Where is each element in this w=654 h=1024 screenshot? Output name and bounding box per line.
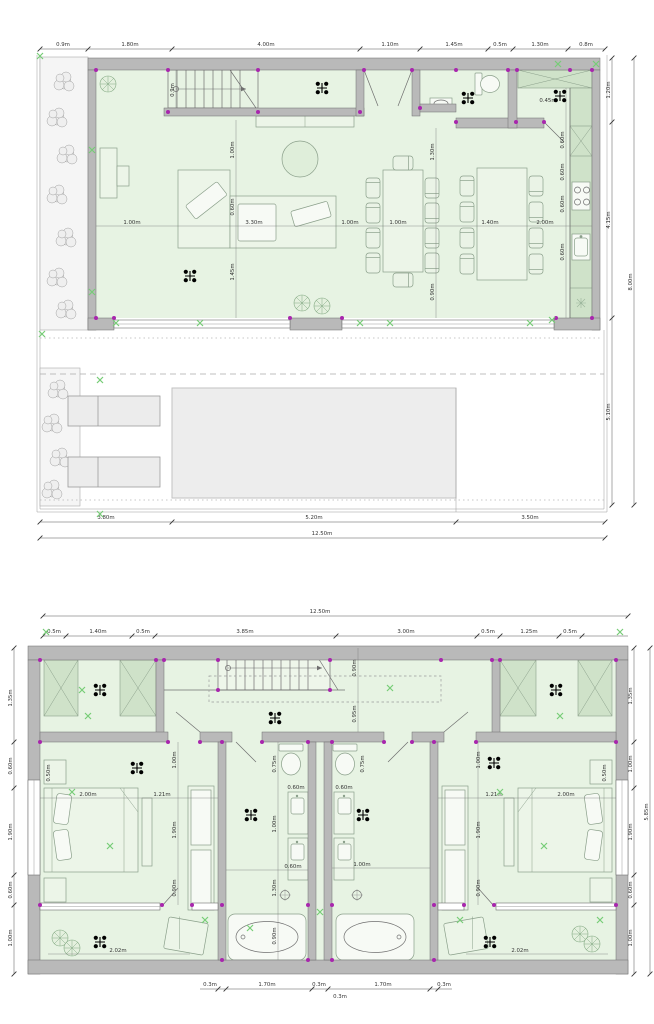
dim-label: 4.00m <box>257 42 274 48</box>
dim-label: 0.9m <box>170 83 176 97</box>
floor-plan-sheet: 0.9m 1.80m 4.00m 1.10m 1.45m 0.5m 1.30m … <box>0 0 654 1024</box>
ceiling-light-icon <box>245 809 258 822</box>
dim-label: 1.00m <box>341 220 358 226</box>
dim-label: 1.30m <box>430 143 436 160</box>
dim-label: 0.5m <box>563 629 577 635</box>
dim-label: 1.70m <box>374 982 391 988</box>
dim-label: 1.00m <box>123 220 140 226</box>
dim-label: 0.3m <box>437 982 451 988</box>
ceiling-light-icon <box>554 90 567 103</box>
drain-icon <box>570 288 592 318</box>
dim-label: 2.00m <box>557 792 574 798</box>
dim-label: 2.00m <box>79 792 96 798</box>
dim-label: 1.90m <box>628 823 634 840</box>
dim-label: 1.80m <box>121 42 138 48</box>
bathtub-icon <box>336 914 414 960</box>
dim-label: 1.90m <box>172 821 178 838</box>
dim-label: 1.30m <box>272 879 278 896</box>
dim-label: 1.00m <box>272 815 278 832</box>
dim-label: 0.50m <box>602 764 608 781</box>
dim-label: 1.10m <box>381 42 398 48</box>
bed <box>518 788 612 872</box>
dim-label: 3.80m <box>97 515 114 521</box>
dim-label: 1.21m <box>153 792 170 798</box>
pool <box>172 388 456 498</box>
dim-label: 1.45m <box>445 42 462 48</box>
dim-label: 8.00m <box>628 273 634 290</box>
dim-label: 1.00m <box>628 755 634 772</box>
plant-icon <box>294 295 310 311</box>
dim-label: 1.21m <box>485 792 502 798</box>
dim-label: 0.60m <box>628 881 634 898</box>
ceiling-light-icon <box>484 936 497 949</box>
dim-label: 1.45m <box>230 263 236 280</box>
sun-lounger <box>68 396 160 426</box>
dim-label: 0.5m <box>47 629 61 635</box>
dim-label: 4.15m <box>606 211 612 228</box>
dim-label: 0.5m <box>493 42 507 48</box>
ceiling-light-icon <box>550 684 563 697</box>
nightstand <box>44 878 66 902</box>
dim-label: 0.3m <box>333 994 347 1000</box>
dim-label: 1.00m <box>230 141 236 158</box>
dim-label: 0.90m <box>476 879 482 896</box>
upper-floor-plan: 12.50m 0.5m 1.40m 0.5m 3.85m 3.00m 0.5m … <box>8 609 652 1000</box>
ceiling-light-icon <box>357 809 370 822</box>
dim-label: 0.60m <box>287 785 304 791</box>
dim-label: 1.40m <box>89 629 106 635</box>
dim-label: 2.00m <box>536 220 553 226</box>
planting-bed-upper <box>40 57 88 330</box>
dim-label: 3.30m <box>245 220 262 226</box>
dim-label: 1.20m <box>606 81 612 98</box>
dim-label: 0.60m <box>335 785 352 791</box>
dim-label: 1.90m <box>476 821 482 838</box>
dim-label: 0.90m <box>352 659 358 676</box>
plant-icon <box>584 936 600 952</box>
nightstand <box>590 760 612 784</box>
dim-label: 0.95m <box>352 705 358 722</box>
nightstand <box>590 878 612 902</box>
plant-icon <box>314 298 330 314</box>
dim-label: 5.10m <box>606 403 612 420</box>
ceiling-light-icon <box>94 936 107 949</box>
dim-label: 0.60m <box>284 864 301 870</box>
dim-label: 2.02m <box>511 948 528 954</box>
dim-label: 1.40m <box>481 220 498 226</box>
wardrobe <box>188 786 214 910</box>
dim-label: 0.75m <box>360 755 366 772</box>
dim-label: 0.50m <box>46 764 52 781</box>
dim-label: 1.30m <box>531 42 548 48</box>
dim-label: 1.35m <box>628 687 634 704</box>
dim-label: 1.00m <box>172 751 178 768</box>
plant-icon <box>100 76 116 92</box>
dim-label: 0.60m <box>560 243 566 260</box>
dim-label: 0.60m <box>560 163 566 180</box>
ceiling-light-icon <box>462 92 475 105</box>
dim-label: 0.3m <box>203 982 217 988</box>
dim-label: 0.60m <box>560 195 566 212</box>
dim-label: 1.00m <box>389 220 406 226</box>
dim-label: 0.60m <box>560 131 566 148</box>
dim-label: 1.70m <box>258 982 275 988</box>
dim-label: 5.20m <box>305 515 322 521</box>
dim-label: 3.85m <box>236 629 253 635</box>
dim-label: 3.50m <box>521 515 538 521</box>
dim-label: 0.5m <box>136 629 150 635</box>
dim-label: 0.90m <box>272 927 278 944</box>
dim-label: 0.90m <box>430 283 436 300</box>
dim-label: 1.35m <box>8 689 14 706</box>
ceiling-light-icon <box>94 684 107 697</box>
dim-label: 0.75m <box>272 755 278 772</box>
dim-label: 1.00m <box>353 862 370 868</box>
ceiling-light-icon <box>488 757 501 770</box>
bed <box>44 788 138 872</box>
dim-label: 2.02m <box>109 948 126 954</box>
dim-label: 12.50m <box>310 609 331 615</box>
sun-lounger <box>68 457 160 487</box>
dim-label: 1.25m <box>520 629 537 635</box>
ceiling-light-icon <box>269 712 282 725</box>
ceiling-light-icon <box>316 82 329 95</box>
dim-label: 0.5m <box>481 629 495 635</box>
cooktop-icon <box>572 182 590 210</box>
dim-label: 1.00m <box>8 929 14 946</box>
dim-label: 0.90m <box>172 879 178 896</box>
dim-label: 1.90m <box>8 823 14 840</box>
plan-drawing: 0.9m 1.80m 4.00m 1.10m 1.45m 0.5m 1.30m … <box>0 0 654 1024</box>
dim-label: 0.60m <box>8 881 14 898</box>
dim-label: 0.9m <box>56 42 70 48</box>
dim-label: 5.85m <box>644 803 650 820</box>
dim-label: 0.60m <box>230 198 236 215</box>
kitchen-sink-icon <box>572 234 590 260</box>
bed-bench <box>142 798 152 866</box>
ceiling-light-icon <box>184 270 197 283</box>
dim-label: 0.8m <box>579 42 593 48</box>
dim-label: 0.3m <box>312 982 326 988</box>
plant-icon <box>64 940 80 956</box>
ceiling-light-icon <box>131 762 144 775</box>
wardrobe <box>442 786 468 910</box>
bathtub-icon <box>228 914 306 960</box>
round-rug <box>282 141 318 177</box>
dim-label: 1.00m <box>628 929 634 946</box>
bed-bench <box>504 798 514 866</box>
dim-label: 3.00m <box>397 629 414 635</box>
dim-label: 12.50m <box>312 531 333 537</box>
dim-label: 0.60m <box>8 757 14 774</box>
balcony-chair <box>444 917 489 955</box>
sideboard <box>256 116 354 127</box>
dim-label: 1.00m <box>476 751 482 768</box>
